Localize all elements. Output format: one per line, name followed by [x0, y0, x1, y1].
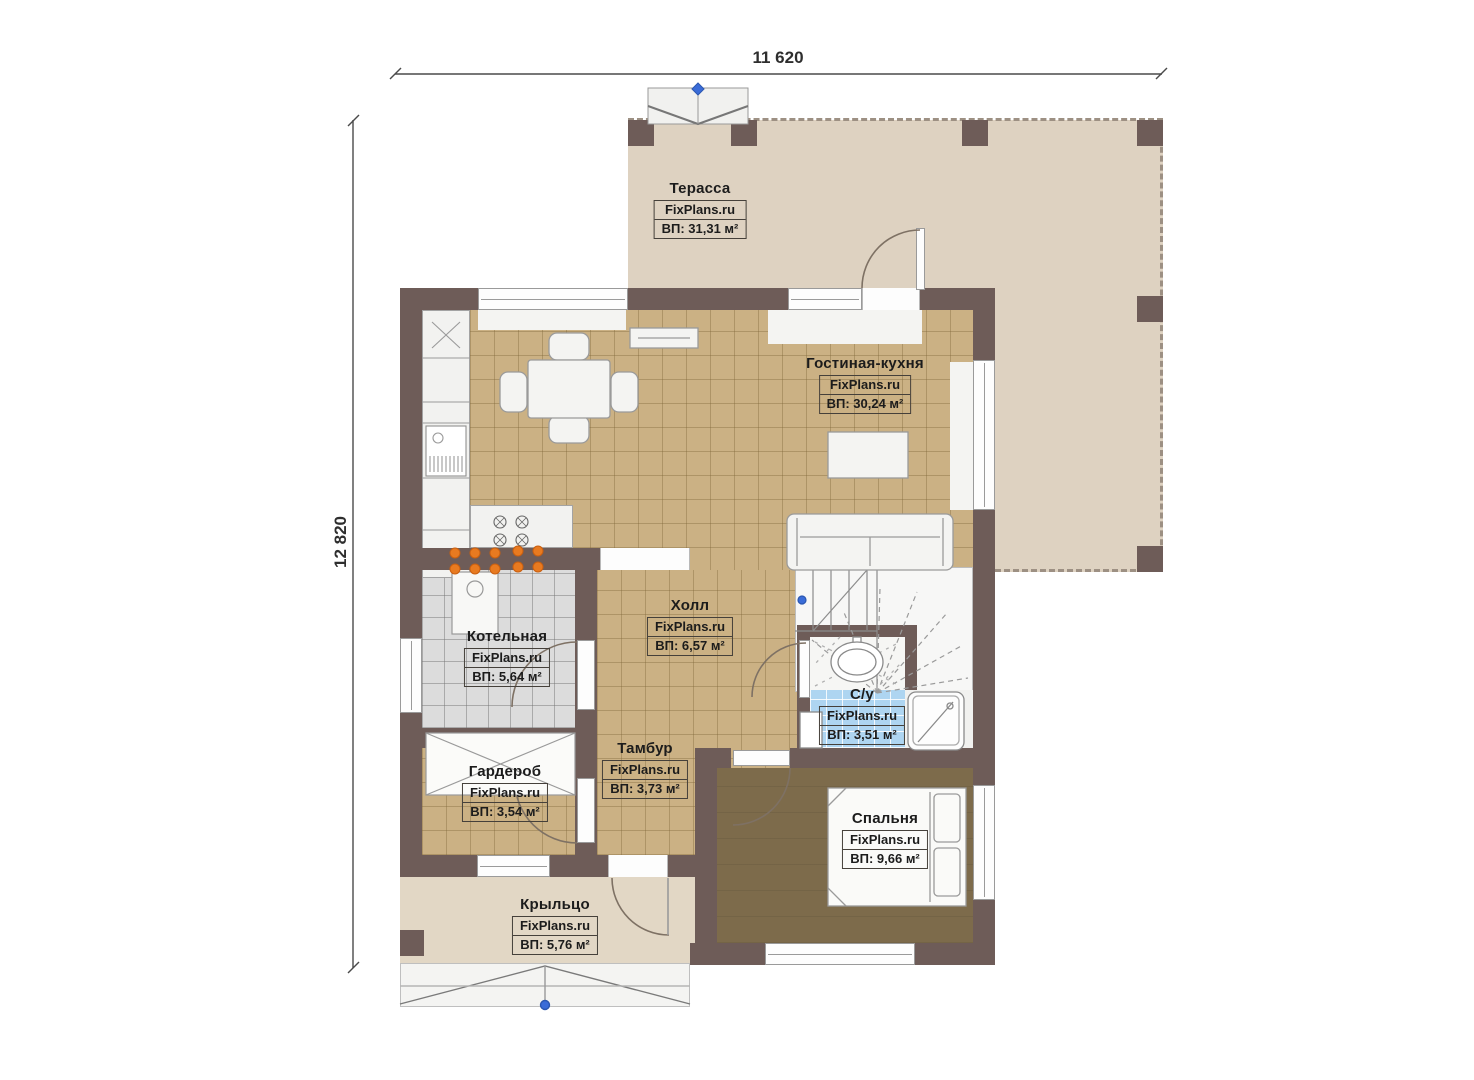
- room-label-bedroom: Спальня FixPlans.ru ВП: 9,66 м²: [842, 810, 928, 869]
- window-recess: [950, 362, 973, 510]
- room-name: Тамбур: [602, 740, 688, 757]
- room-label-porch: Крыльцо FixPlans.ru ВП: 5,76 м²: [512, 896, 598, 955]
- terrace-door-opening: [862, 288, 920, 310]
- wall-bedroom-west: [695, 748, 717, 965]
- kitchen-counter-south: [470, 505, 573, 548]
- entrance-door-opening: [608, 855, 668, 877]
- room-name: Крыльцо: [512, 896, 598, 913]
- door-recess: [768, 310, 922, 344]
- room-brand: FixPlans.ru: [463, 784, 547, 802]
- room-brand: FixPlans.ru: [843, 831, 927, 849]
- room-label-bathroom: С/у FixPlans.ru ВП: 3,51 м²: [819, 686, 905, 745]
- wall-kitchen-boiler: [422, 548, 600, 570]
- room-area: ВП: 3,54 м²: [463, 802, 547, 821]
- room-name: Холл: [647, 597, 733, 614]
- wall-west: [400, 288, 422, 877]
- room-name: Спальня: [842, 810, 928, 827]
- room-label-wardrobe: Гардероб FixPlans.ru ВП: 3,54 м²: [462, 763, 548, 822]
- room-brand: FixPlans.ru: [465, 649, 549, 667]
- wall-bedroom-north-b: [790, 748, 973, 768]
- dimension-width: 11 620: [752, 48, 803, 68]
- window-living-east: [973, 360, 995, 510]
- floor-plan-page: 11 620 12 820 Терасса FixPlans.ru ВП: 31…: [0, 0, 1474, 1080]
- wall-south-left: [400, 855, 717, 877]
- porch-roof-overhang: [400, 963, 690, 1007]
- terrace-edge-north: [628, 118, 1163, 121]
- room-name: Котельная: [464, 628, 550, 645]
- room-area: ВП: 3,51 м²: [820, 725, 904, 744]
- room-brand: FixPlans.ru: [820, 376, 911, 394]
- shower-zone: [905, 690, 973, 750]
- window-kitchen-north: [478, 288, 628, 310]
- window-bedroom-east: [973, 785, 995, 900]
- terrace-door-leaf: [916, 228, 925, 290]
- wall-boiler-wardrobe: [422, 728, 597, 748]
- terrace-post: [731, 120, 757, 146]
- room-area: ВП: 30,24 м²: [820, 394, 911, 413]
- terrace-post: [1137, 296, 1163, 322]
- marker-diamond: [692, 83, 704, 95]
- room-label-terrace: Терасса FixPlans.ru ВП: 31,31 м²: [654, 180, 747, 239]
- wall-bathroom-divider: [905, 625, 917, 690]
- window-boiler-west: [400, 638, 422, 713]
- bathroom-door-leaf: [799, 640, 810, 698]
- window-bedroom-south: [765, 943, 915, 965]
- terrace-post: [962, 120, 988, 146]
- room-name: Гардероб: [462, 763, 548, 780]
- room-name: С/у: [819, 686, 905, 703]
- room-name: Гостиная-кухня: [806, 355, 924, 372]
- terrace-post: [628, 120, 654, 146]
- porch-post: [400, 930, 424, 956]
- room-area: ВП: 3,73 м²: [603, 779, 687, 798]
- room-area: ВП: 6,57 м²: [648, 636, 732, 655]
- window-recess: [478, 310, 626, 330]
- terrace-post: [1137, 120, 1163, 146]
- dimension-height: 12 820: [331, 497, 351, 587]
- terrace-edge-east: [1160, 120, 1163, 572]
- room-area: ВП: 5,76 м²: [513, 935, 597, 954]
- room-brand: FixPlans.ru: [603, 761, 687, 779]
- room-label-vestibule: Тамбур FixPlans.ru ВП: 3,73 м²: [602, 740, 688, 799]
- room-area: ВП: 31,31 м²: [655, 219, 746, 238]
- room-area: ВП: 5,64 м²: [465, 667, 549, 686]
- window-porch: [477, 855, 550, 877]
- bedroom-door-leaf: [733, 750, 790, 766]
- kitchen-hall-opening: [600, 548, 690, 570]
- room-brand: FixPlans.ru: [648, 618, 732, 636]
- terrace-post: [1137, 546, 1163, 572]
- wardrobe-door-leaf: [577, 778, 595, 843]
- room-name: Терасса: [654, 180, 747, 197]
- room-brand: FixPlans.ru: [820, 707, 904, 725]
- window-terrace-sidelight: [788, 288, 862, 310]
- room-brand: FixPlans.ru: [513, 917, 597, 935]
- room-brand: FixPlans.ru: [655, 201, 746, 219]
- room-area: ВП: 9,66 м²: [843, 849, 927, 868]
- room-label-hall: Холл FixPlans.ru ВП: 6,57 м²: [647, 597, 733, 656]
- room-label-boiler: Котельная FixPlans.ru ВП: 5,64 м²: [464, 628, 550, 687]
- wall-bathroom-north: [797, 625, 917, 637]
- kitchen-counter-west: [422, 310, 470, 578]
- wall-bedroom-north-a: [695, 748, 731, 768]
- bathroom-sink-zone: [810, 637, 905, 692]
- boiler-door-leaf: [577, 640, 595, 710]
- room-label-living-kitchen: Гостиная-кухня FixPlans.ru ВП: 30,24 м²: [806, 355, 924, 414]
